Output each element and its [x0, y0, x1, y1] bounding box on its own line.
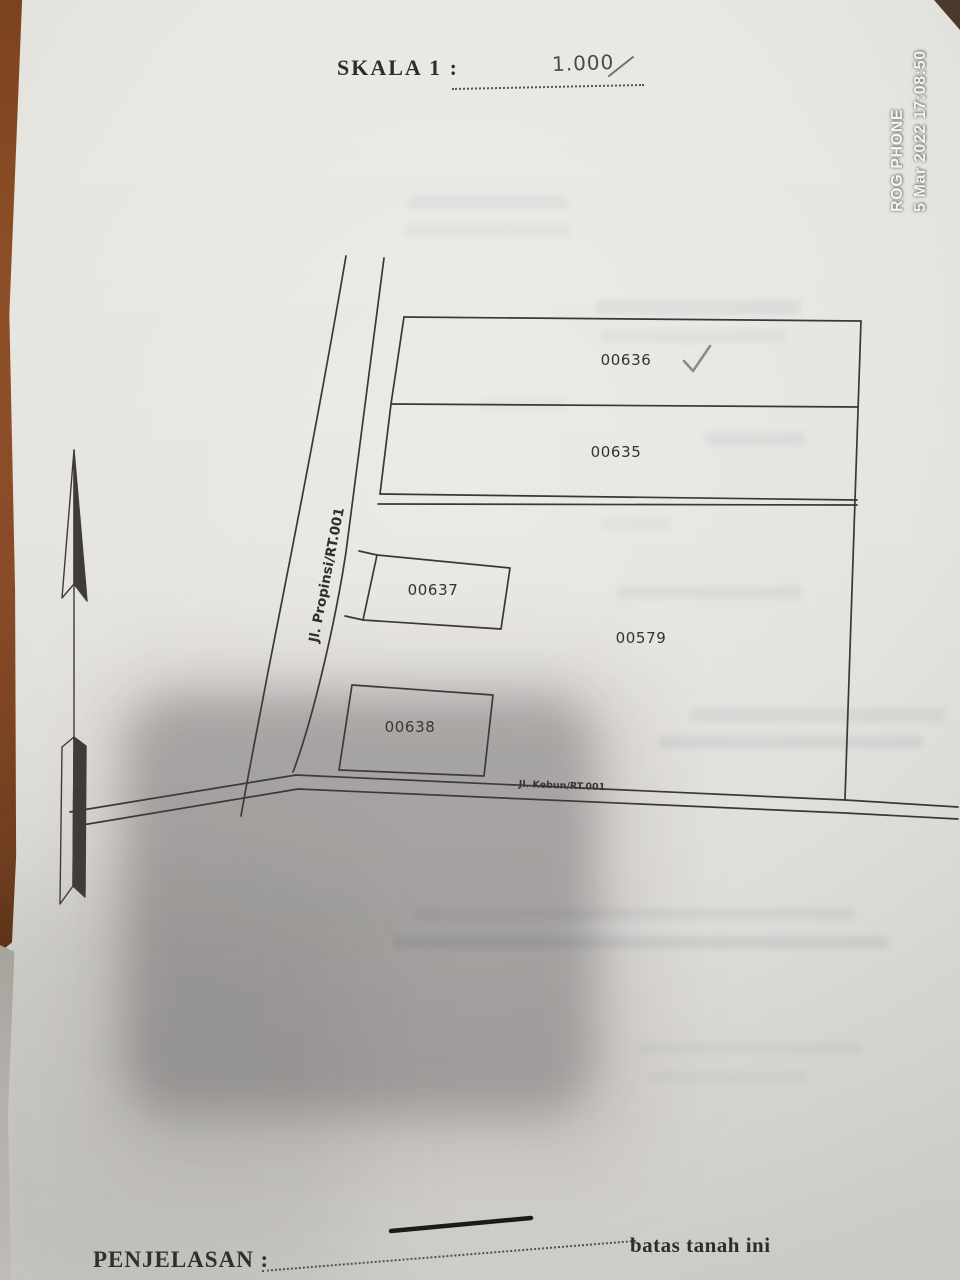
parcel-label-00579: 00579	[616, 629, 667, 647]
parcel-block-left	[380, 317, 404, 494]
parcel-label-00635: 00635	[591, 443, 642, 461]
road-kebun-bottom-line	[76, 789, 958, 826]
parcel-label-00637: 00637	[408, 581, 459, 599]
parcel-635-bottom-line2	[378, 504, 857, 505]
parcel-00637-tick-bottom	[345, 616, 363, 620]
parcel-00637-tick-top	[359, 551, 377, 555]
parcel-label-00636: 00636	[601, 351, 652, 369]
parcel-divider-636-635	[391, 404, 858, 407]
watermark-datetime: 5 Mar 2022 17:08:50	[909, 6, 932, 212]
parcel-block-top	[404, 317, 861, 321]
parcel-label-00638: 00638	[385, 718, 436, 736]
legend-boundary-label: batas tanah ini	[630, 1233, 771, 1258]
watermark-brand: ROG PHONE	[886, 6, 909, 212]
parcel-635-bottom-line1	[380, 494, 857, 500]
north-arrow-icon	[60, 450, 87, 904]
scale-value-tick	[609, 57, 633, 76]
photo-of-document: SKALA 1 : 1.000	[0, 0, 960, 1280]
parcel-block-right	[845, 321, 861, 799]
legend-heading: PENJELASAN :	[93, 1247, 269, 1273]
road-kebun-top-line	[70, 775, 958, 812]
camera-watermark: ROG PHONE 5 Mar 2022 17:08:50	[886, 6, 936, 212]
checkmark-annotation	[684, 346, 710, 371]
boundary-line-symbol	[391, 1218, 531, 1231]
plot-map-linework	[0, 0, 960, 1280]
